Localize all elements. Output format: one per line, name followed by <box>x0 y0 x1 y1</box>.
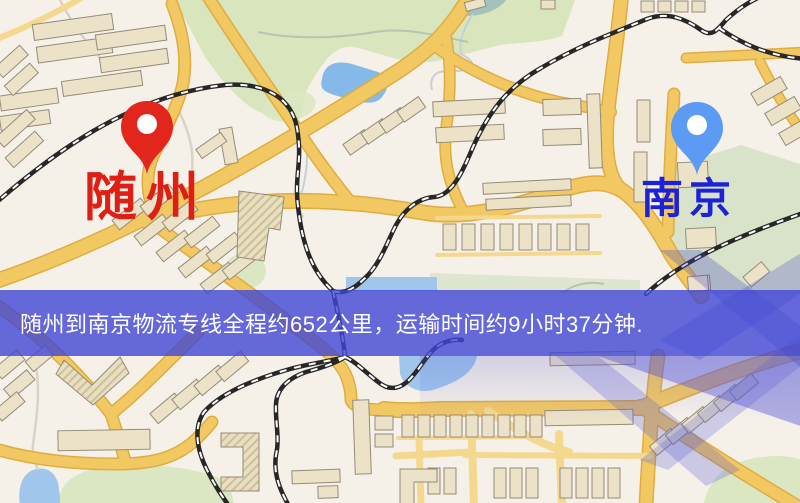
destination-city-label: 南京 <box>641 179 737 221</box>
map-background <box>0 0 800 503</box>
route-map-image: 随州 南京 随州到南京物流专线全程约652公里，运输时间约9小时37分钟. <box>0 0 800 503</box>
route-info-text: 随州到南京物流专线全程约652公里，运输时间约9小时37分钟. <box>0 307 643 339</box>
red-map-pin-icon <box>118 98 176 176</box>
blue-map-pin-icon <box>668 99 726 177</box>
origin-city-label: 随州 <box>84 172 208 225</box>
route-info-banner: 随州到南京物流专线全程约652公里，运输时间约9小时37分钟. <box>0 290 800 356</box>
